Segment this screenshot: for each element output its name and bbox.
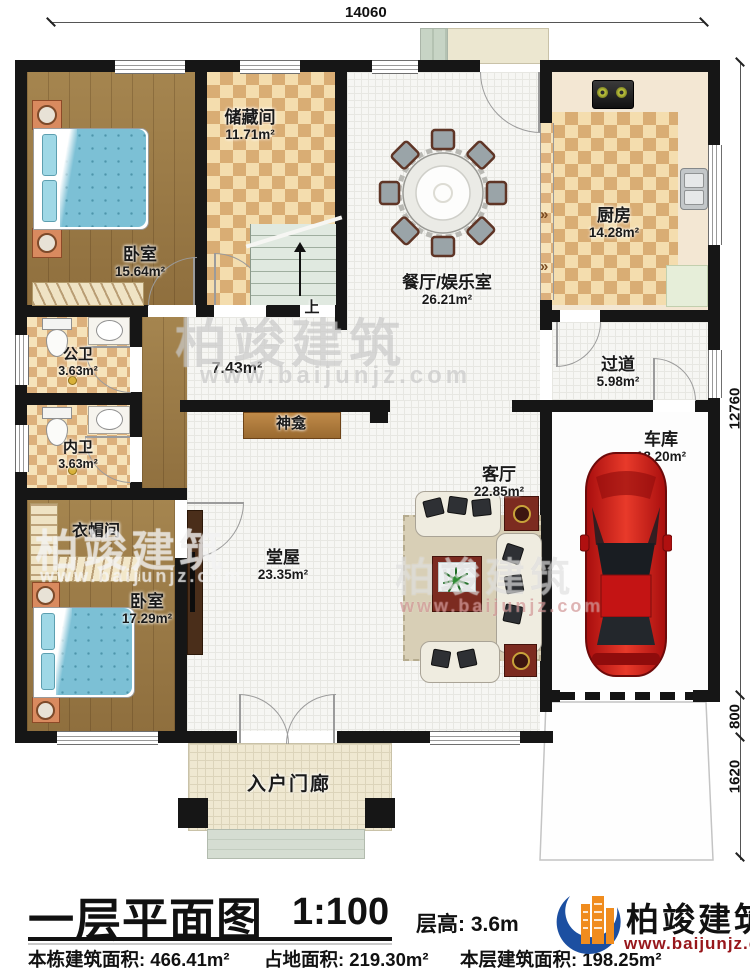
wall — [15, 393, 142, 405]
wall — [370, 412, 388, 423]
wall — [335, 72, 347, 330]
page-scale: 1:100 — [292, 891, 389, 934]
wall — [708, 60, 720, 145]
wall — [15, 472, 27, 743]
window — [430, 731, 520, 745]
wall — [300, 60, 372, 72]
wall — [15, 305, 148, 317]
sofa-pillow — [431, 649, 452, 669]
window — [240, 60, 300, 74]
wall — [130, 317, 142, 347]
bath-sink-basin — [96, 409, 123, 430]
wall — [600, 310, 708, 322]
porch-steps — [207, 829, 365, 859]
door-leaf — [214, 253, 216, 305]
window — [57, 731, 158, 745]
driveway-ramp — [538, 700, 718, 865]
title-underline — [28, 937, 392, 941]
floor-plan-page: { "dimensions": { "top": "14060", "right… — [0, 0, 750, 974]
wall — [185, 60, 240, 72]
stove-burner-icon — [597, 87, 608, 98]
title-underline-shadow — [28, 943, 392, 945]
wall — [158, 731, 237, 743]
stairs-arrow-head — [294, 236, 306, 252]
dimension-line-right — [740, 62, 741, 860]
door-leaf — [538, 72, 540, 132]
bed-fold — [52, 608, 72, 695]
wall — [130, 392, 142, 437]
storage-label: 储藏间 11.71m² — [225, 108, 276, 142]
stove-burner-icon — [616, 87, 627, 98]
passage-label: 过道 5.98m² — [597, 355, 640, 389]
door-leaf — [333, 694, 335, 743]
bedroom-bottom-label: 卧室 17.29m² — [122, 592, 172, 626]
watermark-url: www.baijunjz.com — [400, 596, 603, 617]
terrace-steps — [420, 28, 448, 64]
bed-pillow — [41, 653, 55, 690]
sink-basin — [684, 173, 704, 188]
side-table-decor-icon — [512, 652, 530, 670]
wall — [708, 398, 720, 700]
window — [15, 425, 29, 472]
shrine-label: 神龛 — [276, 416, 306, 433]
dimension-right-total: 12760 — [727, 386, 744, 432]
window — [15, 335, 29, 385]
public-bath-label: 公卫 3.63m² — [58, 347, 98, 378]
wall — [540, 300, 552, 330]
living-label: 客厅 22.85m² — [474, 465, 524, 499]
wall — [15, 60, 115, 72]
land-area: 占地面积: 219.30m² — [264, 946, 429, 972]
wall — [695, 400, 720, 412]
wall — [693, 690, 720, 702]
bath-sink-basin — [96, 320, 123, 341]
wall — [15, 731, 57, 743]
kitchen-label: 厨房 14.28m² — [589, 206, 639, 240]
nightstand-lamp-icon — [37, 233, 57, 253]
sink-basin — [684, 190, 704, 205]
stairs — [250, 224, 336, 305]
window — [372, 60, 418, 74]
bed-pillow — [41, 613, 55, 650]
sofa-pillow — [471, 498, 492, 517]
wall — [15, 60, 27, 335]
wall — [708, 245, 720, 350]
door-leaf — [193, 257, 195, 305]
porch-column — [365, 798, 395, 828]
wall — [520, 731, 553, 743]
dimension-right-mid: 800 — [727, 699, 744, 735]
porch-column — [178, 798, 208, 828]
kitchen-mat — [666, 265, 708, 307]
wall — [512, 400, 653, 412]
sliding-door-arrow-icon: » — [540, 210, 548, 220]
door-leaf — [556, 322, 558, 366]
door-leaf — [239, 694, 241, 743]
dimension-top-label: 14060 — [345, 4, 387, 21]
wall — [180, 400, 390, 412]
window — [708, 145, 722, 245]
building-area: 本栋建筑面积: 466.41m² — [28, 946, 230, 972]
bedroom-top-label: 卧室 15.64m² — [115, 245, 165, 279]
wall — [337, 731, 430, 743]
door-leaf — [187, 502, 243, 504]
garage-door-dashed — [560, 692, 693, 700]
wall — [552, 310, 560, 322]
sliding-door-arrow-icon: » — [540, 262, 548, 272]
bed-pillow — [42, 180, 57, 222]
floor-height: 层高: 3.6m — [416, 908, 519, 938]
watermark-url: www.baijunjz.com — [40, 566, 243, 587]
sofa-pillow — [447, 496, 468, 515]
dimension-line-top — [50, 22, 705, 23]
porch-name: 入户门廊 — [247, 774, 331, 795]
door-leaf — [653, 358, 655, 400]
wall — [15, 385, 27, 425]
dining-label: 餐厅/娱乐室 26.21m² — [402, 273, 492, 307]
bed-pillow — [42, 134, 57, 176]
main-hall-label: 堂屋 23.35m² — [258, 548, 308, 582]
porch-label: 入户门廊 — [247, 774, 331, 795]
car — [580, 447, 672, 682]
nightstand-lamp-icon — [36, 586, 55, 605]
watermark-url: www.baijunjz.com — [200, 362, 471, 390]
side-table-decor-icon — [513, 505, 531, 523]
wardrobe — [32, 282, 144, 306]
dimension-right-bottom: 1620 — [727, 756, 744, 798]
inner-bath-label: 内卫 3.63m² — [58, 440, 98, 471]
window — [708, 350, 722, 398]
bed-fold — [55, 129, 77, 227]
brand-website: www.baijunjz.com — [624, 934, 750, 954]
nightstand-lamp-icon — [36, 701, 55, 720]
nightstand-lamp-icon — [37, 105, 57, 125]
window — [115, 60, 185, 74]
brand-logo-icon — [553, 886, 625, 960]
wall — [418, 60, 480, 72]
wall — [540, 72, 552, 123]
dining-table-set — [378, 128, 508, 258]
watermark-text: 柏竣建筑 — [395, 545, 575, 603]
wall — [540, 60, 720, 72]
wall — [15, 488, 187, 500]
door-leaf — [85, 436, 130, 438]
